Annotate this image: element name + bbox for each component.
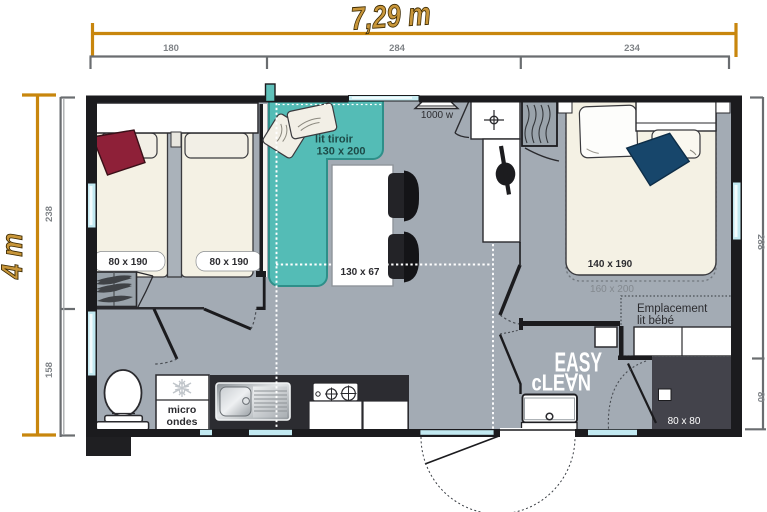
svg-text:158: 158 [44,362,55,378]
svg-text:1000 w: 1000 w [421,110,454,121]
svg-text:cLE∀N: cLE∀N [532,370,592,396]
svg-text:80: 80 [755,392,766,403]
svg-text:micro: micro [168,404,197,416]
svg-text:160 x 200: 160 x 200 [590,284,634,295]
svg-text:288: 288 [755,234,766,250]
svg-text:140 x 190: 140 x 190 [588,259,633,270]
svg-text:lit bébé: lit bébé [637,315,674,327]
svg-text:80 x 80: 80 x 80 [668,416,701,427]
svg-text:Emplacement: Emplacement [637,303,708,315]
svg-text:130 x 200: 130 x 200 [317,146,366,158]
svg-text:4 m: 4 m [0,233,29,280]
svg-text:130 x 67: 130 x 67 [341,267,380,278]
svg-text:ondes: ondes [167,416,198,428]
svg-text:284: 284 [389,43,406,54]
svg-text:7,29 m: 7,29 m [350,0,432,37]
svg-text:238: 238 [44,206,55,222]
svg-text:180: 180 [163,43,179,54]
svg-text:lit tiroir: lit tiroir [315,134,354,146]
svg-text:234: 234 [624,43,641,54]
svg-text:80 x 190: 80 x 190 [210,257,249,268]
svg-text:80 x 190: 80 x 190 [109,257,148,268]
